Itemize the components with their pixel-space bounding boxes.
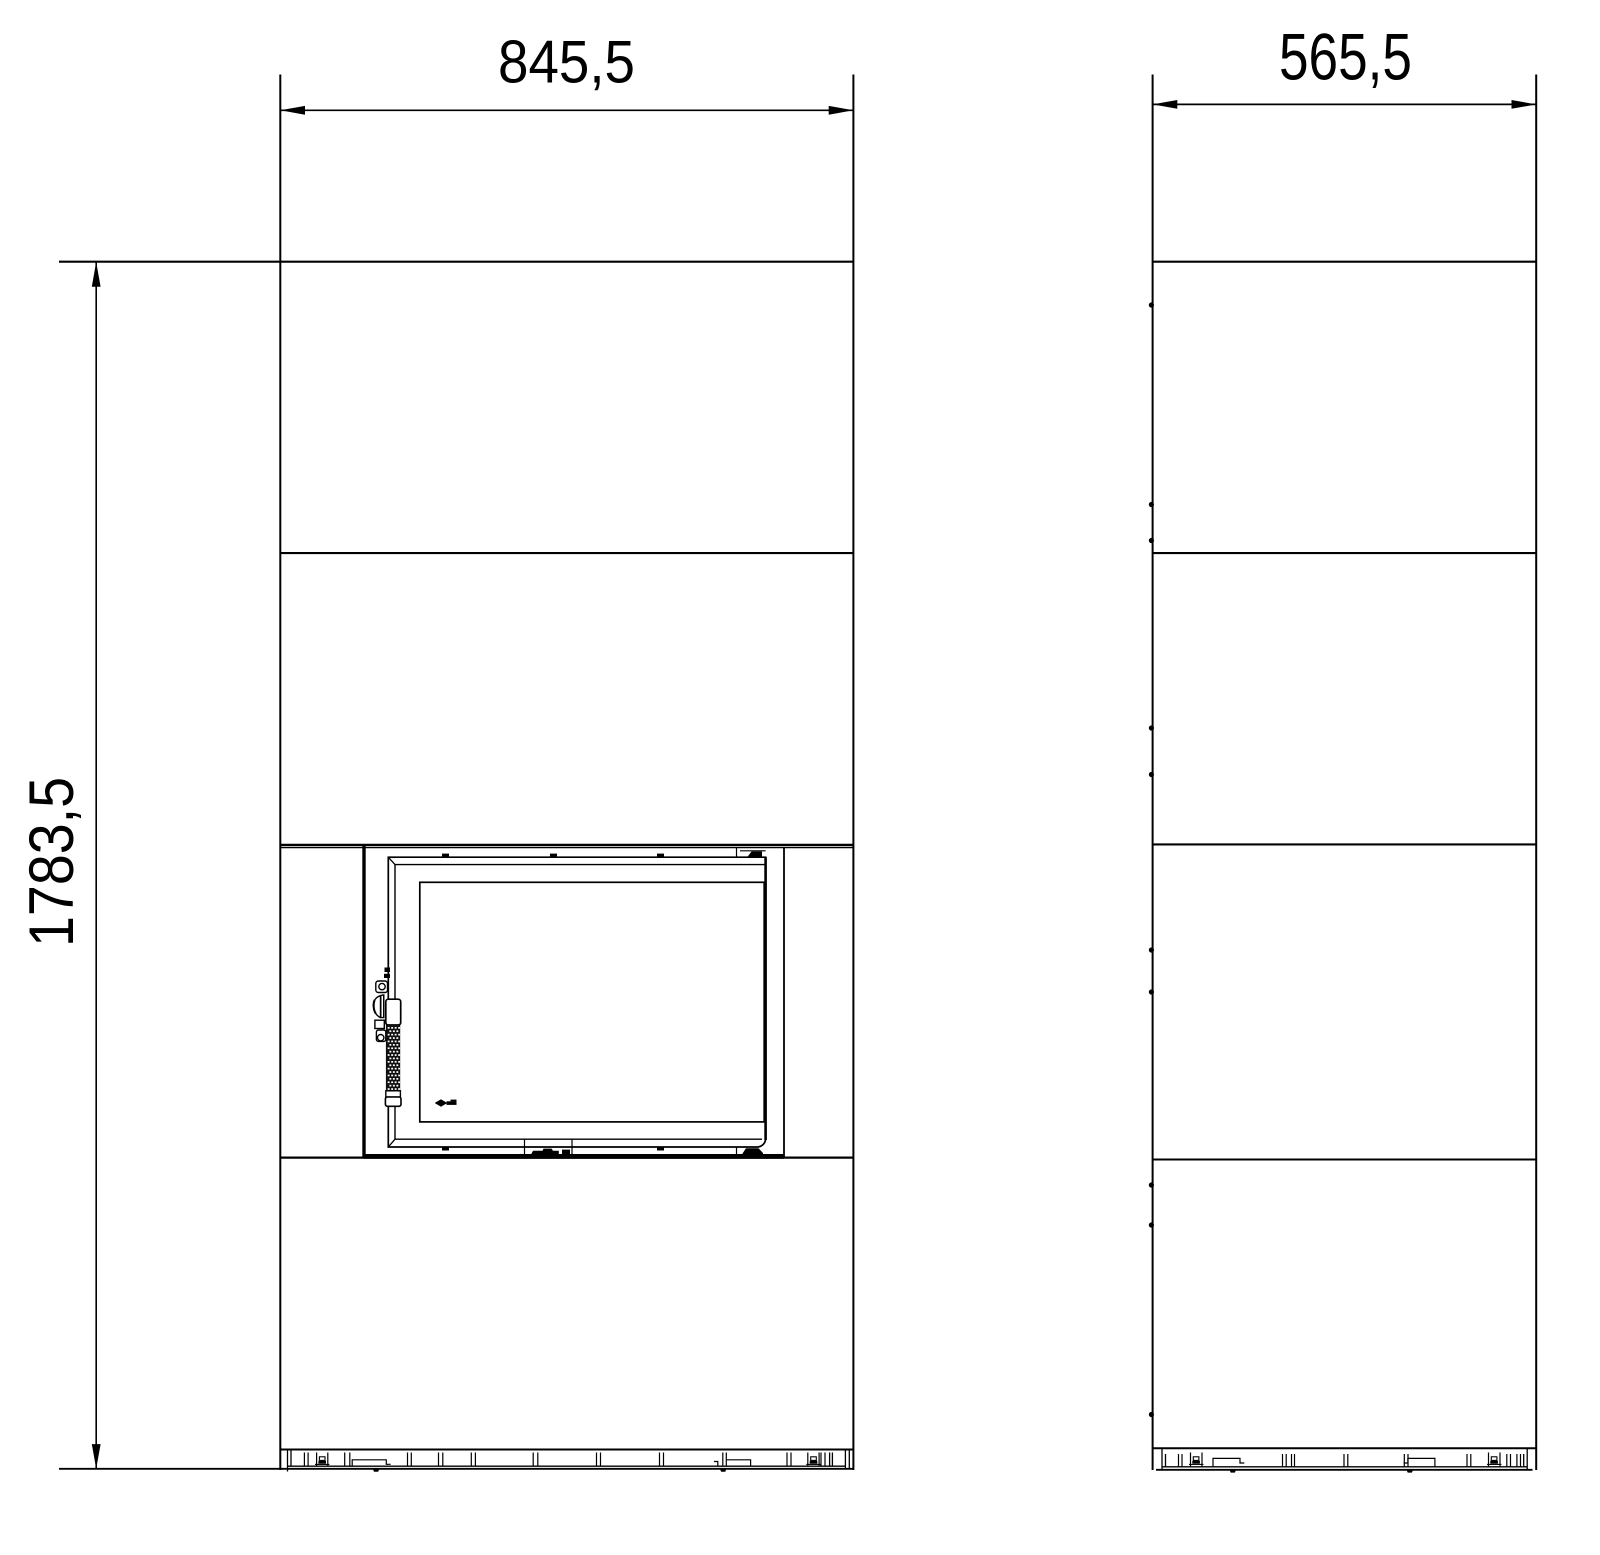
- svg-text:565,5: 565,5: [1279, 20, 1412, 94]
- svg-text:845,5: 845,5: [498, 28, 635, 96]
- svg-text:1783,5: 1783,5: [17, 777, 87, 947]
